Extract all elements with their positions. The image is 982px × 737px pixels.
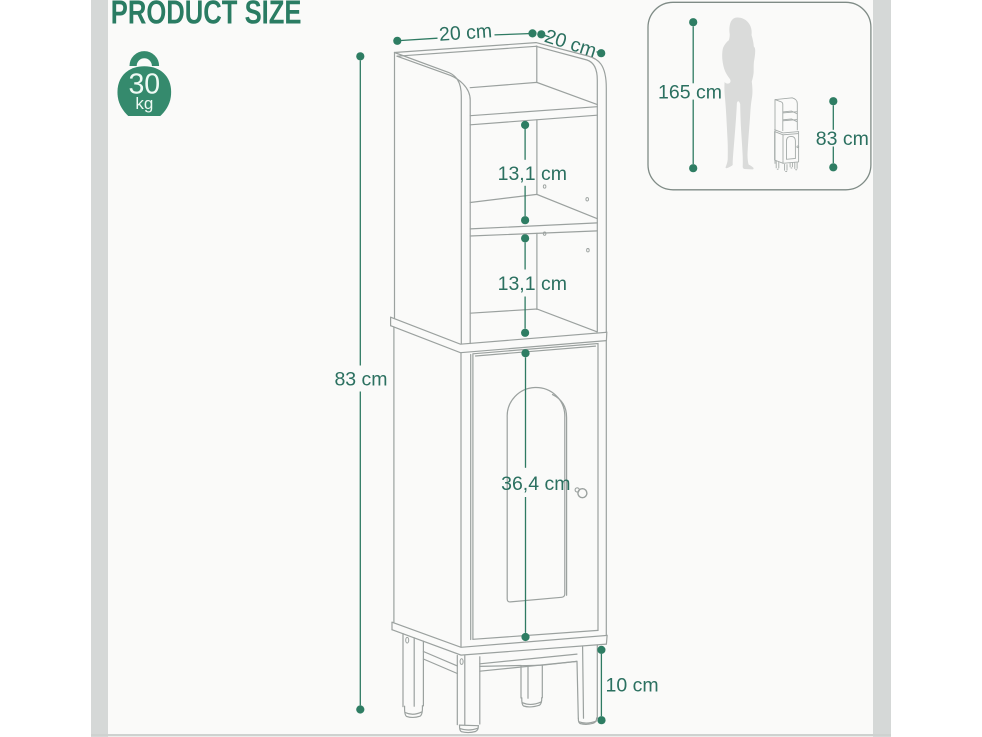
svg-text:10 cm: 10 cm — [606, 674, 659, 696]
svg-text:36,4 cm: 36,4 cm — [501, 473, 570, 495]
svg-text:20 cm: 20 cm — [542, 25, 599, 62]
svg-text:83 cm: 83 cm — [334, 368, 387, 390]
svg-text:PRODUCT SIZE: PRODUCT SIZE — [111, 0, 302, 32]
svg-text:13,1 cm: 13,1 cm — [498, 163, 567, 185]
svg-text:20 cm: 20 cm — [438, 20, 493, 46]
svg-text:165 cm: 165 cm — [658, 81, 722, 103]
svg-text:13,1 cm: 13,1 cm — [498, 273, 567, 295]
svg-text:kg: kg — [135, 94, 153, 113]
svg-text:83 cm: 83 cm — [816, 128, 869, 150]
